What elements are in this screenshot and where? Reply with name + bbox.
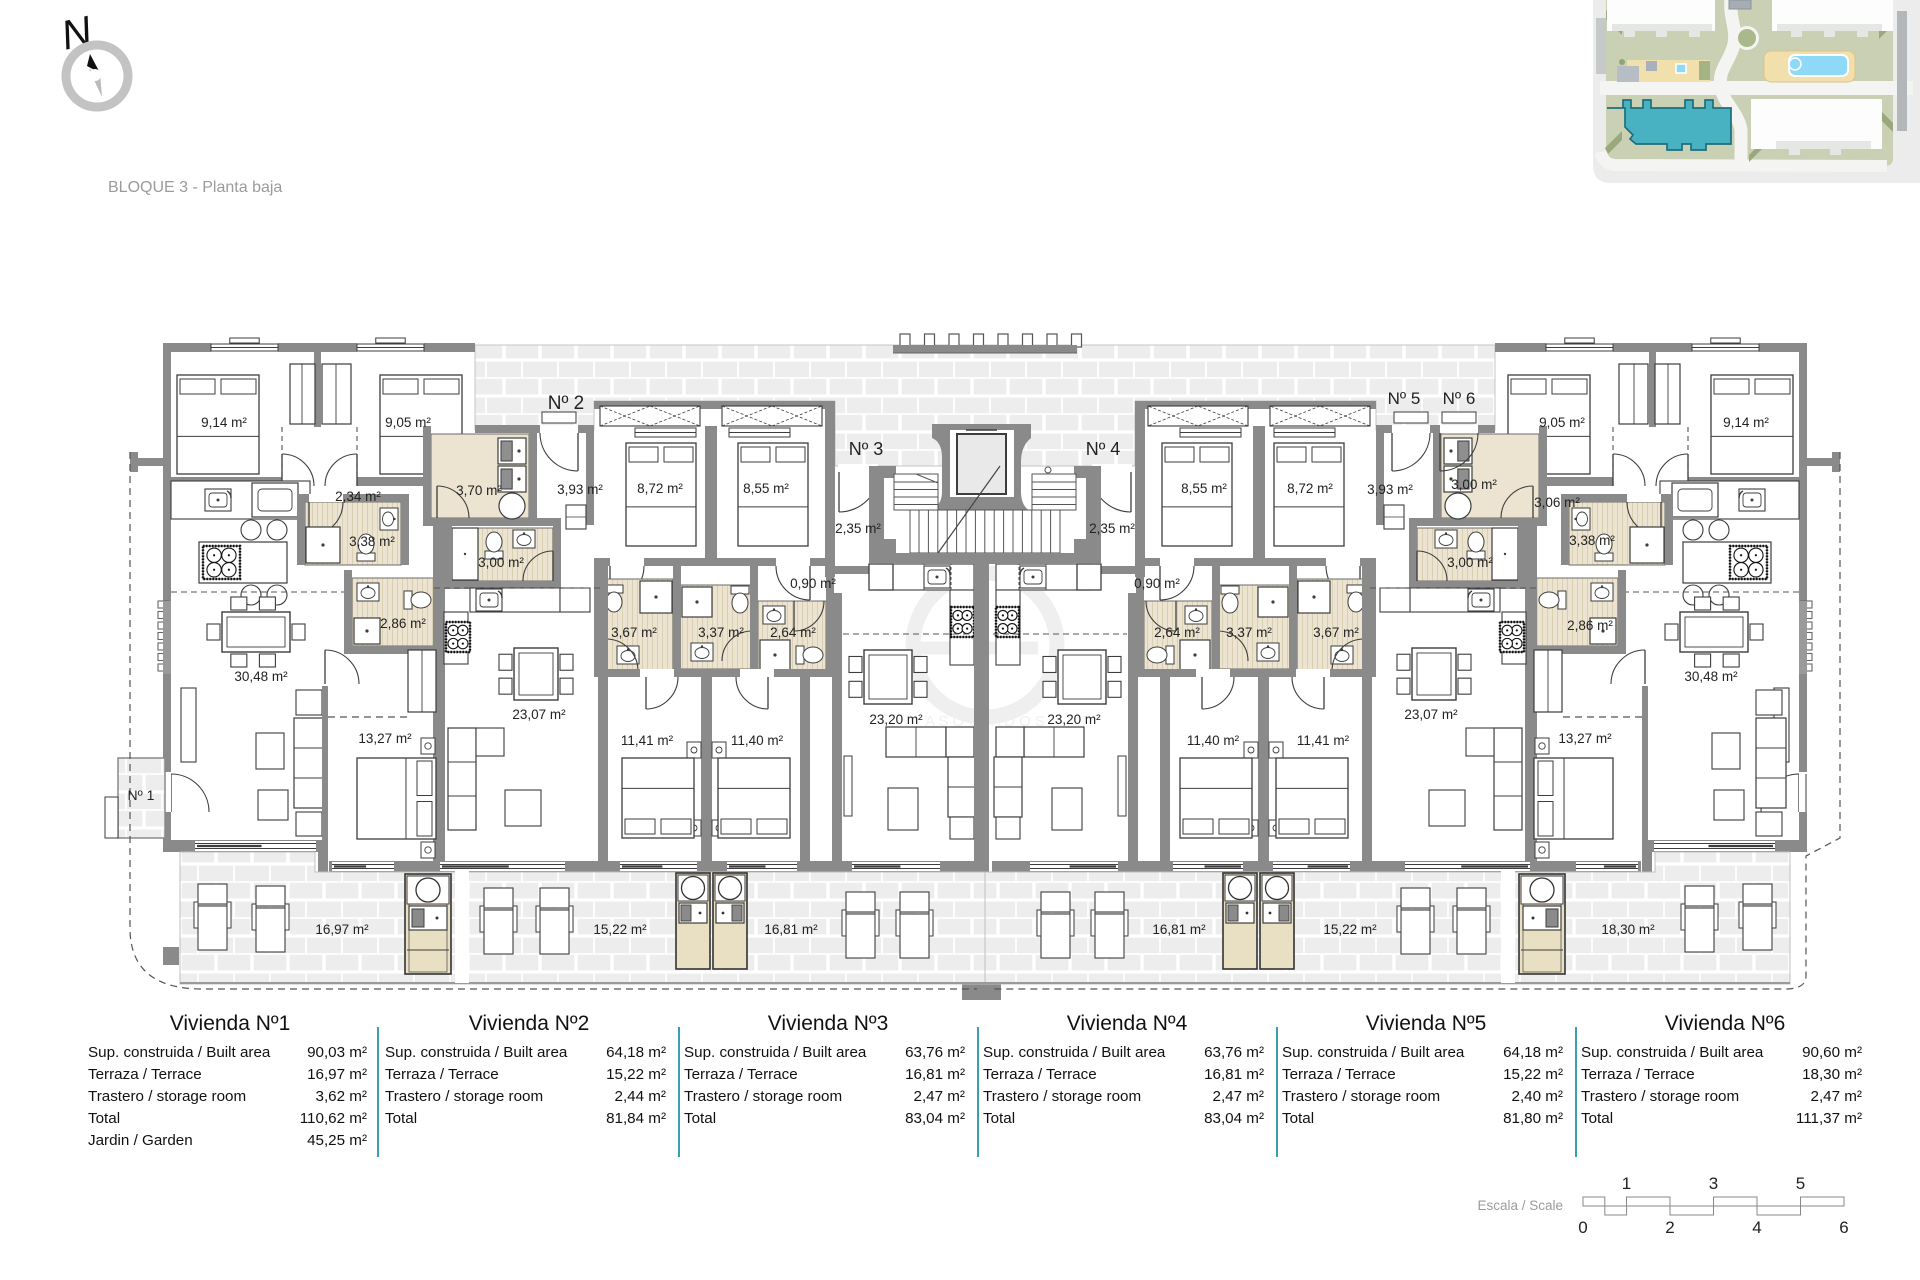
svg-text:15,22 m²: 15,22 m² [593,922,647,937]
svg-text:Trastero / storage room: Trastero / storage room [684,1088,842,1105]
svg-text:Total: Total [385,1110,417,1127]
svg-text:3,38 m²: 3,38 m² [1569,533,1615,548]
svg-text:23,20 m²: 23,20 m² [869,712,923,727]
svg-text:83,04 m²: 83,04 m² [1204,1110,1264,1127]
svg-text:5: 5 [1796,1174,1805,1193]
svg-text:2,47 m²: 2,47 m² [1213,1088,1265,1105]
svg-text:64,18 m²: 64,18 m² [606,1044,666,1061]
svg-text:64,18 m²: 64,18 m² [1503,1044,1563,1061]
svg-text:Total: Total [1581,1110,1613,1127]
svg-text:16,81 m²: 16,81 m² [905,1066,965,1083]
svg-text:Nº 2: Nº 2 [548,393,585,414]
svg-text:13,27 m²: 13,27 m² [1558,731,1612,746]
svg-text:3,62 m²: 3,62 m² [316,1088,368,1105]
svg-text:Nº 6: Nº 6 [1443,389,1476,408]
svg-text:Vivienda Nº1: Vivienda Nº1 [170,1012,291,1035]
svg-text:Total: Total [983,1110,1015,1127]
svg-text:Trastero / storage room: Trastero / storage room [1282,1088,1440,1105]
svg-text:16,81 m²: 16,81 m² [764,922,818,937]
svg-text:Sup. construida / Built area: Sup. construida / Built area [983,1044,1166,1061]
svg-text:8,55 m²: 8,55 m² [1181,481,1227,496]
svg-text:16,81 m²: 16,81 m² [1204,1066,1264,1083]
svg-text:2: 2 [1665,1218,1674,1237]
svg-text:4: 4 [1752,1218,1761,1237]
svg-text:Nº 5: Nº 5 [1388,389,1421,408]
svg-text:Total: Total [88,1110,120,1127]
svg-text:3,06 m²: 3,06 m² [1534,495,1580,510]
svg-text:BLOQUE 3 - Planta baja: BLOQUE 3 - Planta baja [108,179,282,196]
svg-text:11,41 m²: 11,41 m² [1297,733,1350,748]
svg-text:Trastero / storage room: Trastero / storage room [385,1088,543,1105]
svg-text:Terraza / Terrace: Terraza / Terrace [1282,1066,1396,1083]
svg-text:2,34 m²: 2,34 m² [335,489,381,504]
svg-text:Total: Total [684,1110,716,1127]
svg-text:3,37 m²: 3,37 m² [1226,625,1272,640]
svg-text:2,64 m²: 2,64 m² [770,625,816,640]
svg-text:3,67 m²: 3,67 m² [611,625,657,640]
svg-text:0,90 m²: 0,90 m² [1134,576,1180,591]
svg-text:2,47 m²: 2,47 m² [914,1088,966,1105]
svg-text:11,40 m²: 11,40 m² [1187,733,1240,748]
svg-text:2,35 m²: 2,35 m² [835,521,881,536]
svg-text:3,67 m²: 3,67 m² [1313,625,1359,640]
svg-text:6: 6 [1839,1218,1848,1237]
svg-text:3,00 m²: 3,00 m² [478,555,524,570]
svg-text:2,64 m²: 2,64 m² [1154,625,1200,640]
svg-text:Vivienda Nº4: Vivienda Nº4 [1067,1012,1188,1035]
svg-text:Sup. construida / Built area: Sup. construida / Built area [385,1044,568,1061]
svg-text:15,22 m²: 15,22 m² [1323,922,1377,937]
svg-text:3,37 m²: 3,37 m² [698,625,744,640]
svg-text:1: 1 [1622,1174,1631,1193]
svg-text:3,70 m²: 3,70 m² [456,483,502,498]
svg-text:15,22 m²: 15,22 m² [1503,1066,1563,1083]
svg-text:0: 0 [1578,1218,1587,1237]
svg-text:Trastero / storage room: Trastero / storage room [983,1088,1141,1105]
svg-text:Terraza / Terrace: Terraza / Terrace [983,1066,1097,1083]
svg-text:63,76 m²: 63,76 m² [905,1044,965,1061]
svg-text:Vivienda Nº2: Vivienda Nº2 [469,1012,590,1035]
svg-text:30,48 m²: 30,48 m² [234,669,288,684]
svg-text:30,48 m²: 30,48 m² [1684,669,1738,684]
svg-text:18,30 m²: 18,30 m² [1802,1066,1862,1083]
svg-text:2,44 m²: 2,44 m² [615,1088,667,1105]
svg-text:Escala / Scale: Escala / Scale [1477,1198,1563,1213]
svg-text:0,90 m²: 0,90 m² [790,576,836,591]
svg-text:11,40 m²: 11,40 m² [731,733,784,748]
svg-text:Jardin / Garden: Jardin / Garden [88,1132,193,1149]
svg-text:Trastero / storage room: Trastero / storage room [1581,1088,1739,1105]
svg-text:Trastero / storage room: Trastero / storage room [88,1088,246,1105]
svg-text:8,72 m²: 8,72 m² [1287,481,1333,496]
svg-text:Sup. construida / Built area: Sup. construida / Built area [88,1044,271,1061]
svg-text:16,97 m²: 16,97 m² [315,922,369,937]
svg-text:16,81 m²: 16,81 m² [1152,922,1206,937]
svg-text:Total: Total [1282,1110,1314,1127]
svg-text:8,55 m²: 8,55 m² [743,481,789,496]
svg-text:81,80 m²: 81,80 m² [1503,1110,1563,1127]
svg-text:111,37 m²: 111,37 m² [1796,1110,1862,1127]
svg-text:9,14 m²: 9,14 m² [1723,415,1769,430]
svg-text:3,38 m²: 3,38 m² [349,534,395,549]
svg-text:11,41 m²: 11,41 m² [621,733,674,748]
svg-text:45,25 m²: 45,25 m² [307,1132,367,1149]
svg-text:Terraza / Terrace: Terraza / Terrace [385,1066,499,1083]
svg-text:2,86 m²: 2,86 m² [1567,618,1613,633]
svg-text:23,20 m²: 23,20 m² [1047,712,1101,727]
svg-text:23,07 m²: 23,07 m² [512,707,566,722]
svg-text:15,22 m²: 15,22 m² [606,1066,666,1083]
svg-text:3: 3 [1709,1174,1718,1193]
svg-text:110,62 m²: 110,62 m² [300,1110,367,1127]
svg-text:Sup. construida / Built area: Sup. construida / Built area [684,1044,867,1061]
svg-text:83,04 m²: 83,04 m² [905,1110,965,1127]
svg-text:Nº 1: Nº 1 [128,787,155,803]
svg-text:8,72 m²: 8,72 m² [637,481,683,496]
svg-text:3,93 m²: 3,93 m² [1367,482,1413,497]
svg-text:13,27 m²: 13,27 m² [358,731,412,746]
svg-text:81,84 m²: 81,84 m² [606,1110,666,1127]
svg-text:2,47 m²: 2,47 m² [1811,1088,1863,1105]
svg-text:Terraza / Terrace: Terraza / Terrace [1581,1066,1695,1083]
svg-text:Vivienda Nº6: Vivienda Nº6 [1665,1012,1786,1035]
svg-text:Vivienda Nº3: Vivienda Nº3 [768,1012,889,1035]
svg-text:3,00 m²: 3,00 m² [1451,477,1497,492]
svg-text:16,97 m²: 16,97 m² [307,1066,367,1083]
svg-text:63,76 m²: 63,76 m² [1204,1044,1264,1061]
svg-text:9,05 m²: 9,05 m² [1539,415,1585,430]
svg-text:3,93 m²: 3,93 m² [557,482,603,497]
svg-text:9,05 m²: 9,05 m² [385,415,431,430]
svg-text:2,35 m²: 2,35 m² [1089,521,1135,536]
svg-text:90,03 m²: 90,03 m² [307,1044,367,1061]
svg-text:2,40 m²: 2,40 m² [1512,1088,1564,1105]
svg-text:23,07 m²: 23,07 m² [1404,707,1458,722]
svg-text:Vivienda Nº5: Vivienda Nº5 [1366,1012,1487,1035]
svg-text:3,00 m²: 3,00 m² [1447,555,1493,570]
svg-text:90,60 m²: 90,60 m² [1802,1044,1862,1061]
svg-text:9,14 m²: 9,14 m² [201,415,247,430]
svg-text:Terraza / Terrace: Terraza / Terrace [88,1066,202,1083]
svg-text:Sup. construida / Built area: Sup. construida / Built area [1581,1044,1764,1061]
svg-text:Nº 4: Nº 4 [1086,439,1121,459]
svg-text:18,30 m²: 18,30 m² [1601,922,1655,937]
svg-text:Sup. construida / Built area: Sup. construida / Built area [1282,1044,1465,1061]
svg-text:Nº 3: Nº 3 [849,439,884,459]
svg-text:Terraza / Terrace: Terraza / Terrace [684,1066,798,1083]
svg-text:2,86 m²: 2,86 m² [380,616,426,631]
